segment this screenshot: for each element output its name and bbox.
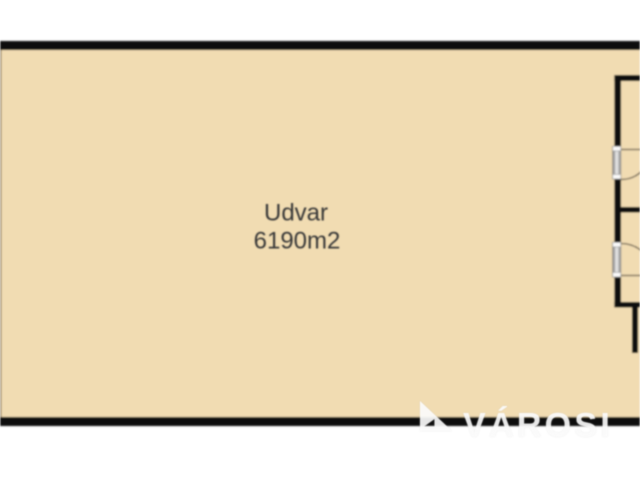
svg-text:Udvar: Udvar xyxy=(264,200,328,227)
svg-text:VÁROSI: VÁROSI xyxy=(463,407,613,445)
svg-text:6190m2: 6190m2 xyxy=(254,228,341,255)
